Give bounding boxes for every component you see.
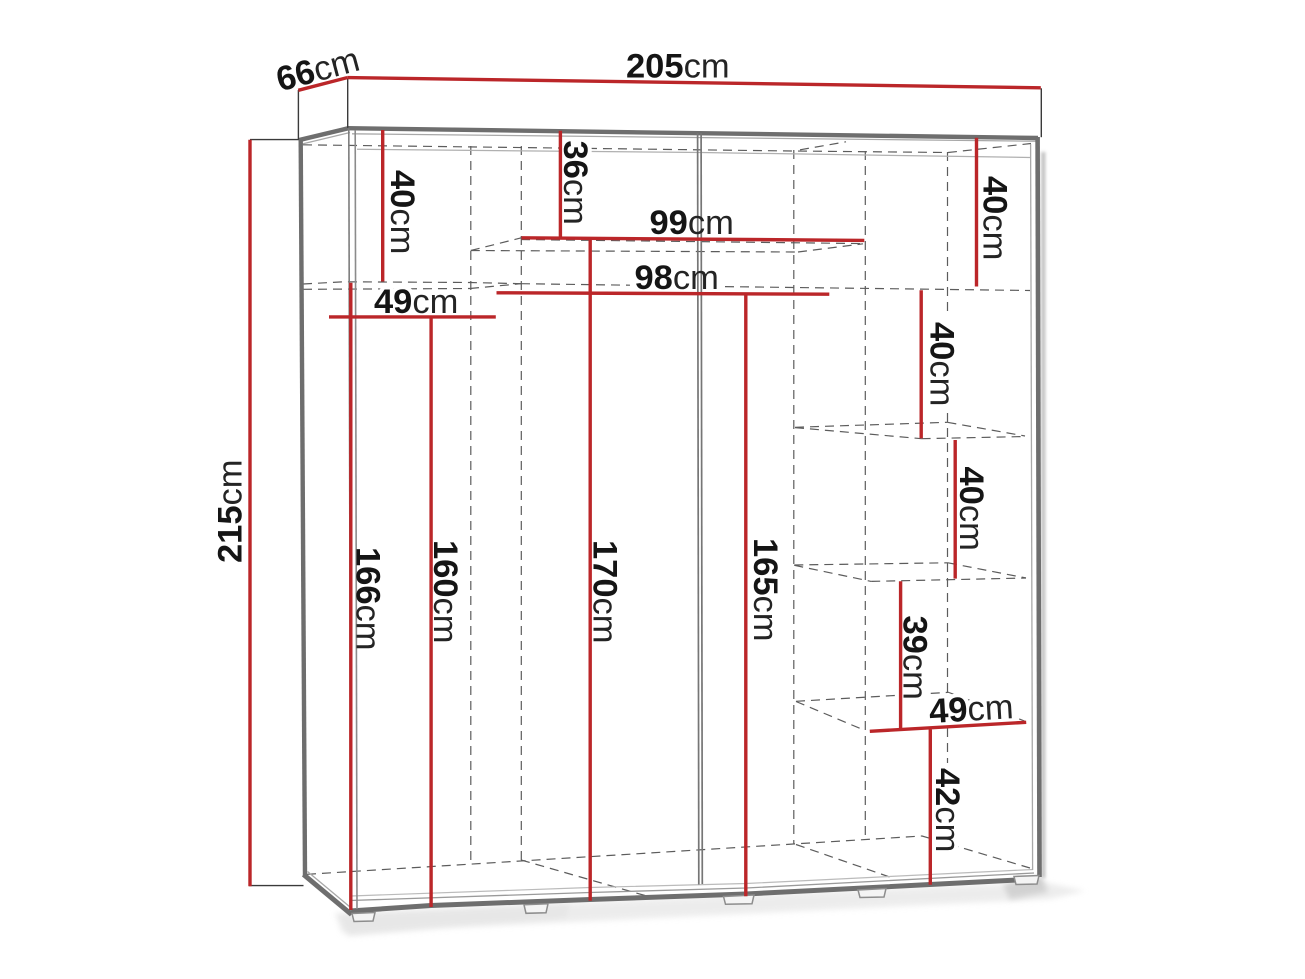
svg-text:166cm: 166cm [348, 547, 386, 651]
svg-text:40cm: 40cm [952, 467, 990, 551]
svg-text:160cm: 160cm [426, 540, 464, 644]
svg-text:42cm: 42cm [928, 768, 966, 852]
svg-text:40cm: 40cm [923, 322, 961, 406]
svg-text:40cm: 40cm [976, 176, 1014, 260]
svg-text:40cm: 40cm [383, 170, 421, 254]
svg-text:99cm: 99cm [650, 204, 734, 242]
svg-text:49cm: 49cm [928, 688, 1014, 731]
svg-text:98cm: 98cm [635, 259, 719, 297]
svg-text:205cm: 205cm [626, 48, 730, 86]
svg-text:39cm: 39cm [896, 616, 934, 700]
svg-text:170cm: 170cm [585, 540, 623, 644]
svg-text:36cm: 36cm [556, 141, 594, 225]
svg-text:165cm: 165cm [746, 538, 784, 642]
svg-text:215cm: 215cm [212, 459, 250, 563]
svg-text:49cm: 49cm [374, 283, 458, 321]
